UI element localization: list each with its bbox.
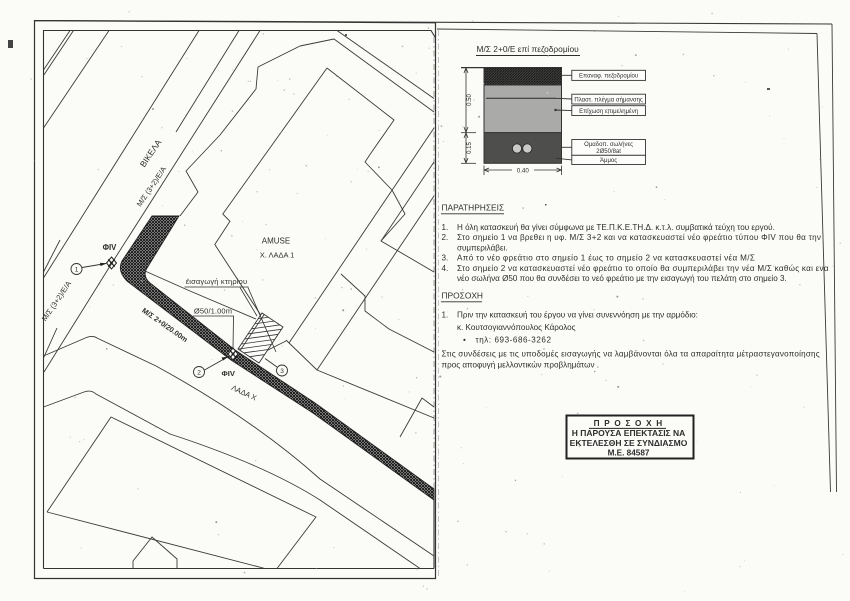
svg-text:1.: 1. — [442, 311, 449, 320]
svg-text:συμπεριλάβει.: συμπεριλάβει. — [457, 243, 508, 252]
svg-text:Από το νέο φρεάτιο στο σημείο: Από το νέο φρεάτιο στο σημείο 1 έως το σ… — [457, 254, 755, 263]
svg-text:Μ.Ε. 84587: Μ.Ε. 84587 — [608, 449, 650, 458]
svg-text:ΕΚΤΕΛΕΣΘΗ ΣΕ ΣΥΝΔΙΑΣΜΟ: ΕΚΤΕΛΕΣΘΗ ΣΕ ΣΥΝΔΙΑΣΜΟ — [570, 438, 688, 448]
svg-text:ΦΙV: ΦΙV — [103, 243, 118, 252]
svg-text:Στο σημείο 2 να κατασκευαστεί: Στο σημείο 2 να κατασκευαστεί νέο φρεάτι… — [457, 264, 829, 273]
svg-text:Στις συνδέσεις με τις υποδομές: Στις συνδέσεις με τις υποδομές εισαγωγής… — [442, 350, 820, 359]
svg-text:Ομαδοπ. σωλήνες: Ομαδοπ. σωλήνες — [584, 141, 633, 148]
svg-text:0.50: 0.50 — [467, 94, 473, 106]
svg-text:ΠΡΟΣΟΧΗ: ΠΡΟΣΟΧΗ — [442, 291, 483, 301]
svg-text:0.15: 0.15 — [467, 142, 473, 154]
svg-text:κ. Κουτσογιαννόπουλος Κάρολος: κ. Κουτσογιαννόπουλος Κάρολος — [457, 323, 576, 332]
svg-text:Η ΠΑΡΟΥΣΑ ΕΠΕΚΤΑΣΙΣ ΝΑ: Η ΠΑΡΟΥΣΑ ΕΠΕΚΤΑΣΙΣ ΝΑ — [572, 428, 686, 438]
svg-text:2.: 2. — [442, 233, 449, 242]
svg-text:ΠΑΡΑΤΗΡΗΣΕΙΣ: ΠΑΡΑΤΗΡΗΣΕΙΣ — [442, 203, 505, 213]
svg-text:2Ø50/8at: 2Ø50/8at — [596, 149, 621, 155]
svg-text:Χ. ΛΑΔΑ 1: Χ. ΛΑΔΑ 1 — [260, 251, 295, 260]
svg-text:νέο σωλήνα Ø50 που θα συνδέσει: νέο σωλήνα Ø50 που θα συνδέσει το νεό φρ… — [457, 274, 787, 283]
svg-text:•: • — [463, 336, 466, 345]
svg-text:Επαναφ. πεζοδρομίου: Επαναφ. πεζοδρομίου — [579, 74, 638, 80]
svg-text:3.: 3. — [442, 254, 449, 263]
svg-text:Στο σημείο 1 να βρεθει η υφ. Μ: Στο σημείο 1 να βρεθει η υφ. Μ/Σ 3+2 και… — [457, 233, 821, 242]
svg-text:Μ/Σ 2+0/Ε επί πεζοδρομίου: Μ/Σ 2+0/Ε επί πεζοδρομίου — [477, 44, 580, 54]
svg-text:Η όλη κατασκευή θα γίνει σύμφω: Η όλη κατασκευή θα γίνει σύμφωνα με ΤΕ.Π… — [457, 223, 775, 232]
svg-text:εισαγωγή κτηρίου: εισαγωγή κτηρίου — [186, 277, 248, 286]
svg-text:1: 1 — [75, 267, 79, 274]
svg-text:τηλ: 693-686-3262: τηλ: 693-686-3262 — [476, 336, 552, 345]
svg-text:0.40: 0.40 — [517, 168, 530, 175]
svg-text:2: 2 — [197, 370, 201, 377]
svg-text:3: 3 — [280, 368, 284, 375]
svg-text:AMUSE: AMUSE — [262, 237, 290, 246]
svg-text:Πριν την κατασκευή του έργου ν: Πριν την κατασκευή του έργου να γίνει συ… — [457, 311, 698, 320]
svg-text:Πλαστ. πλέγμα σήμανσης: Πλαστ. πλέγμα σήμανσης — [574, 96, 643, 103]
svg-text:1.: 1. — [442, 223, 449, 232]
svg-text:Ø50/1.00m: Ø50/1.00m — [194, 307, 232, 316]
svg-text:ΦΙV: ΦΙV — [222, 369, 236, 378]
svg-text:Άμμος: Άμμος — [600, 158, 617, 164]
svg-text:προς αποφυγή μελλοντικών προβλ: προς αποφυγή μελλοντικών προβλημάτων . — [442, 361, 600, 370]
svg-text:Π Ρ Ο Σ Ο Χ Η: Π Ρ Ο Σ Ο Χ Η — [594, 419, 664, 428]
svg-text:4.: 4. — [442, 264, 449, 273]
